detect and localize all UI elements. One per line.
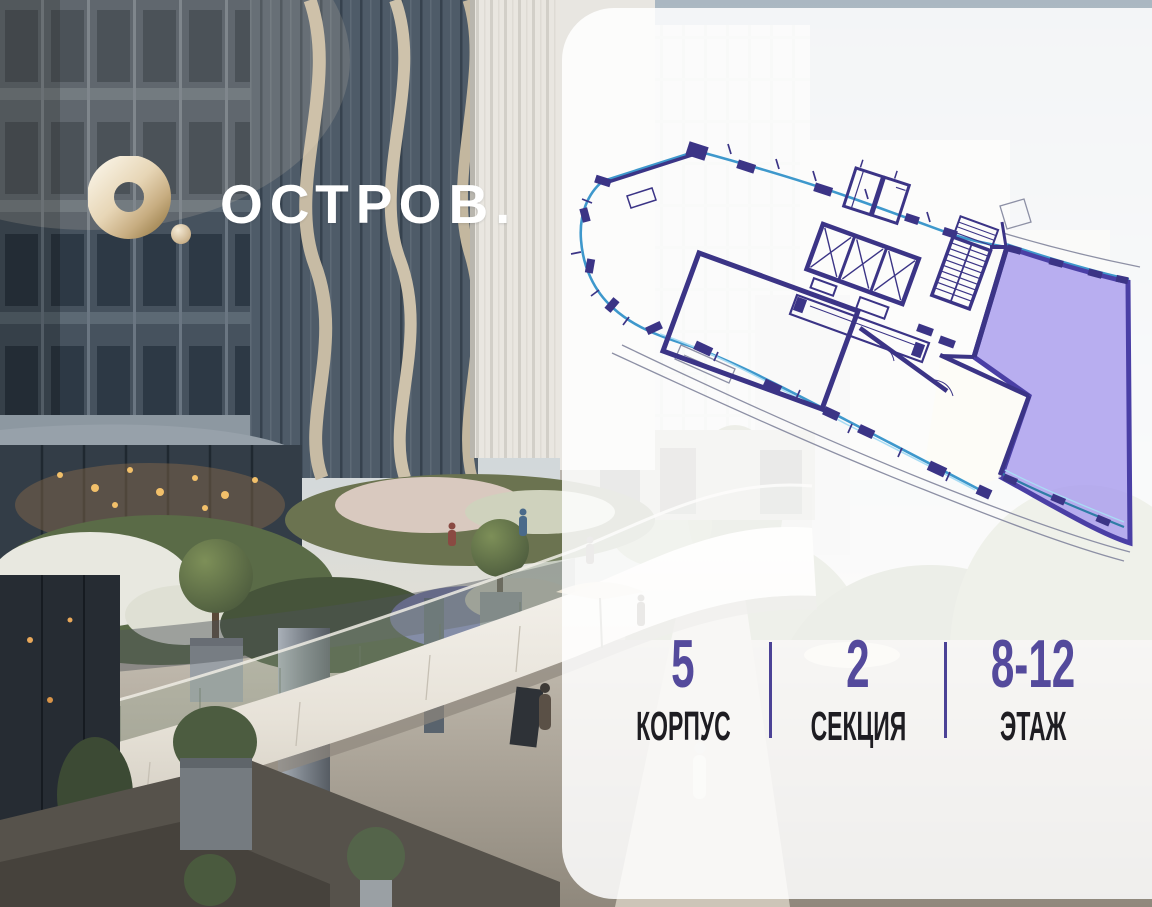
facade-ticks <box>571 144 950 481</box>
elevator-core <box>800 224 919 323</box>
divider <box>769 642 772 738</box>
info-floors: 8-12 ЭТАЖ <box>967 628 1099 746</box>
top-rooms <box>844 158 913 223</box>
divider <box>944 642 947 738</box>
info-building: 5 КОРПУС <box>617 628 749 746</box>
plan-panel: 5 КОРПУС 2 СЕКЦИЯ 8-12 ЭТАЖ <box>562 8 1152 899</box>
floors-number: 8-12 <box>991 628 1075 700</box>
building-number: 5 <box>671 628 694 700</box>
floor-plan <box>562 8 1152 899</box>
logo-text: ОСТРОВ. <box>220 177 517 232</box>
brand-logo: ОСТРОВ. <box>88 156 517 252</box>
corridor-blocks <box>793 297 956 359</box>
unit-info-row: 5 КОРПУС 2 СЕКЦИЯ 8-12 ЭТАЖ <box>562 628 1152 746</box>
section-label: СЕКЦИЯ <box>810 706 906 746</box>
section-number: 2 <box>846 628 869 700</box>
hero-banner: ОСТРОВ. <box>0 0 1152 907</box>
floors-label: ЭТАЖ <box>1000 706 1066 746</box>
glass-line <box>660 334 975 490</box>
logo-ring-icon <box>88 156 194 252</box>
info-section: 2 СЕКЦИЯ <box>792 628 924 746</box>
building-label: КОРПУС <box>636 706 731 746</box>
